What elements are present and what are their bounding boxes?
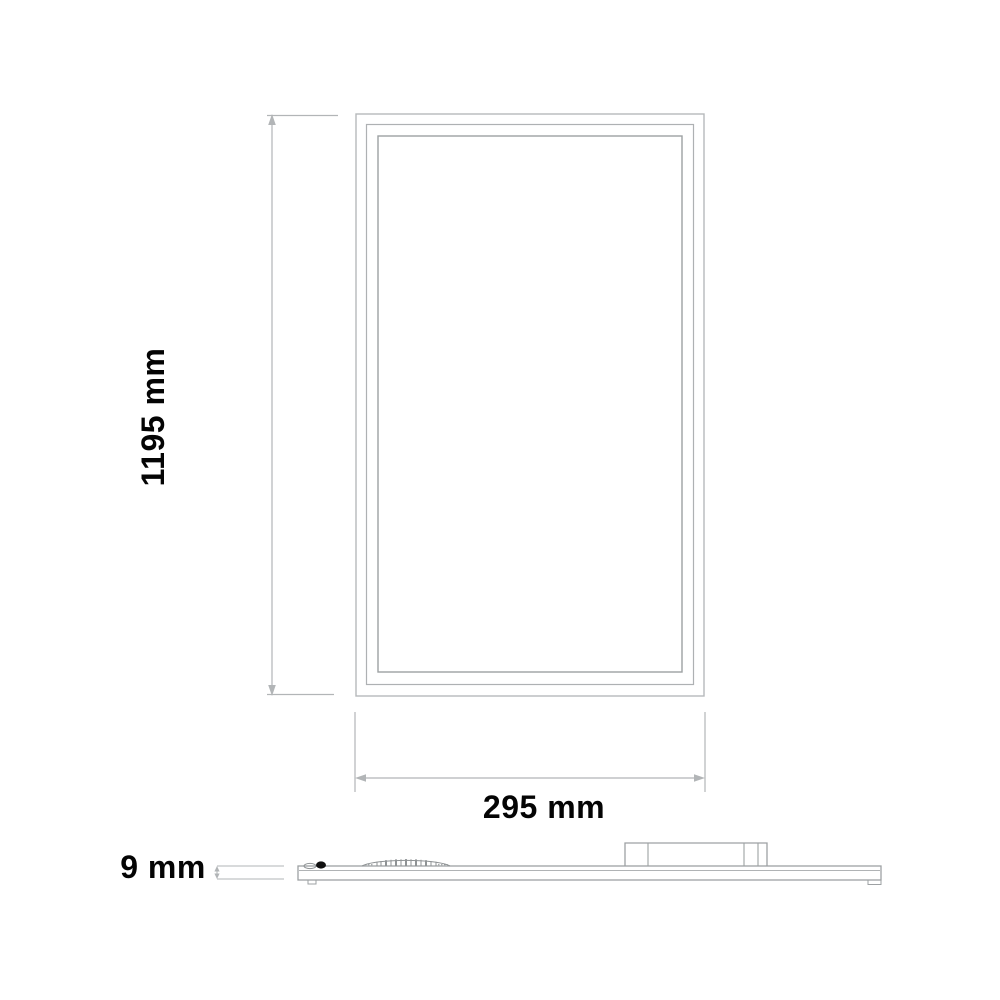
width-dimension-label: 295 mm [483, 791, 605, 823]
height-dimension [267, 114, 338, 696]
panel-mid-frame [367, 125, 694, 685]
thickness-dimension-label: 9 mm [120, 851, 206, 883]
driver-box [625, 843, 767, 866]
panel-side-view [298, 843, 881, 885]
diagram-canvas: 1195 mm 295 mm 9 mm [0, 0, 1000, 1000]
width-dimension [355, 712, 705, 792]
side-panel-body [298, 866, 881, 880]
arrow-left-icon [355, 774, 366, 782]
height-dimension-label: 1195 mm [137, 348, 169, 487]
panel-front-view [356, 114, 704, 696]
side-panel-right-foot [868, 880, 881, 885]
cable-gland [362, 859, 450, 866]
arrow-up-small-icon [214, 866, 219, 872]
panel-outer-frame [356, 114, 704, 696]
connector-knob [316, 861, 326, 868]
arrow-down-small-icon [214, 874, 219, 880]
arrow-right-icon [694, 774, 705, 782]
thickness-dimension [214, 866, 284, 879]
panel-light-area [378, 136, 682, 672]
